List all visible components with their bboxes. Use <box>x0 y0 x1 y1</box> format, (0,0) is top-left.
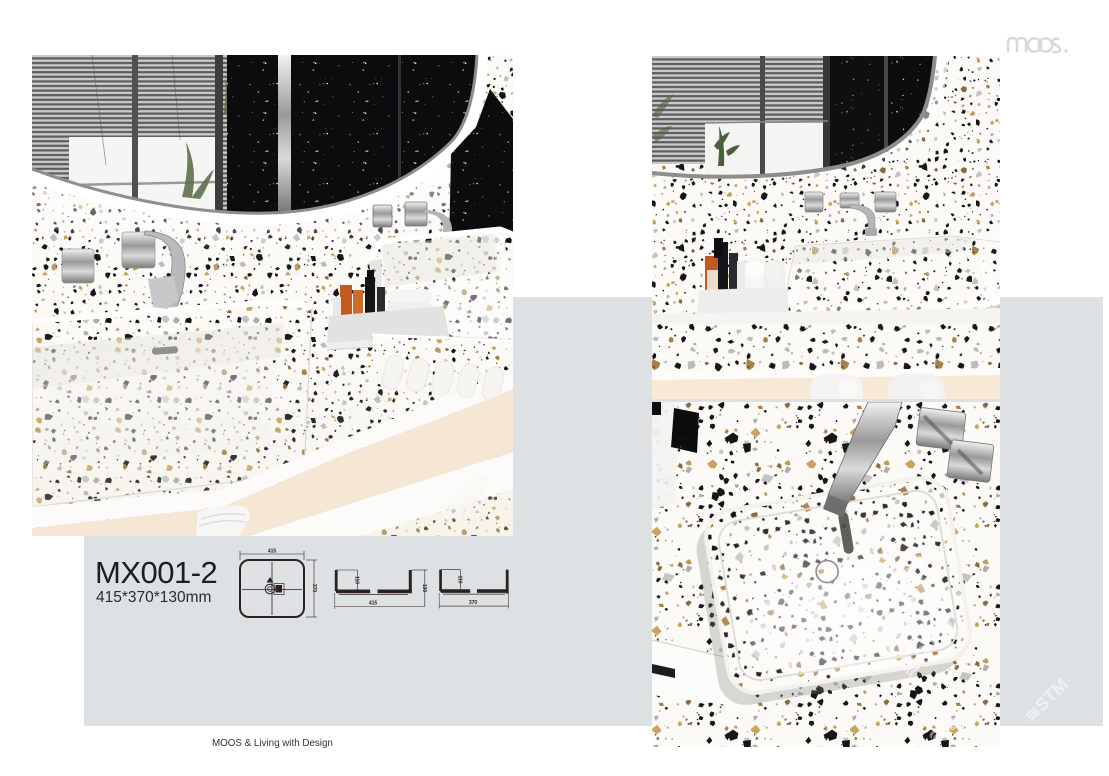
svg-text:415: 415 <box>268 549 277 555</box>
svg-text:415: 415 <box>369 601 378 607</box>
svg-text:110: 110 <box>354 576 360 584</box>
svg-text:110: 110 <box>457 575 463 583</box>
svg-text:370: 370 <box>469 600 478 606</box>
svg-text:130: 130 <box>421 584 427 593</box>
svg-text:370: 370 <box>311 584 317 593</box>
